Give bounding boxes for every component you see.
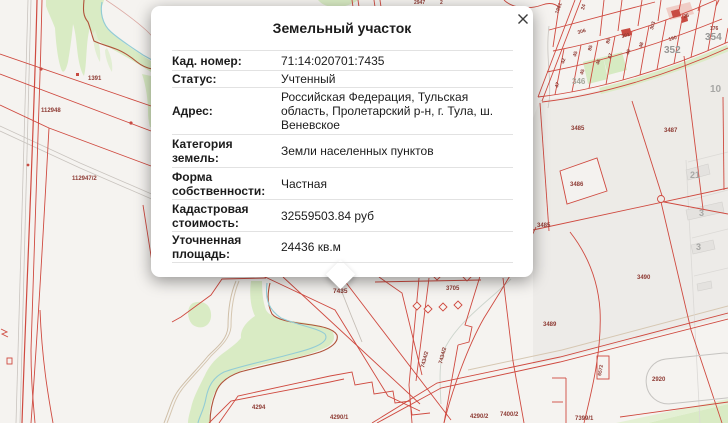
svg-text:3490: 3490: [637, 275, 651, 281]
svg-text:354: 354: [705, 32, 722, 43]
svg-text:4290/1: 4290/1: [330, 415, 349, 421]
svg-text:7399/1: 7399/1: [575, 416, 594, 422]
svg-text:21: 21: [690, 170, 700, 180]
svg-text:3486: 3486: [570, 182, 584, 188]
svg-text:3: 3: [699, 208, 704, 218]
svg-text:10: 10: [710, 84, 722, 95]
svg-text:3705: 3705: [446, 286, 460, 292]
svg-text:352: 352: [664, 45, 681, 56]
svg-text:2920: 2920: [652, 377, 666, 383]
svg-text:3489: 3489: [543, 322, 557, 328]
svg-text:3: 3: [696, 242, 701, 252]
svg-text:1391: 1391: [88, 76, 102, 82]
svg-text:4290/2: 4290/2: [470, 414, 489, 420]
svg-text:112947/2: 112947/2: [72, 176, 97, 182]
svg-text:7400/2: 7400/2: [500, 412, 519, 418]
svg-text:4294: 4294: [252, 405, 266, 411]
svg-text:112948: 112948: [41, 108, 61, 114]
svg-text:3485: 3485: [537, 223, 551, 229]
svg-text:3485: 3485: [571, 126, 585, 132]
svg-text:346: 346: [572, 77, 586, 86]
svg-text:3487: 3487: [664, 128, 678, 134]
